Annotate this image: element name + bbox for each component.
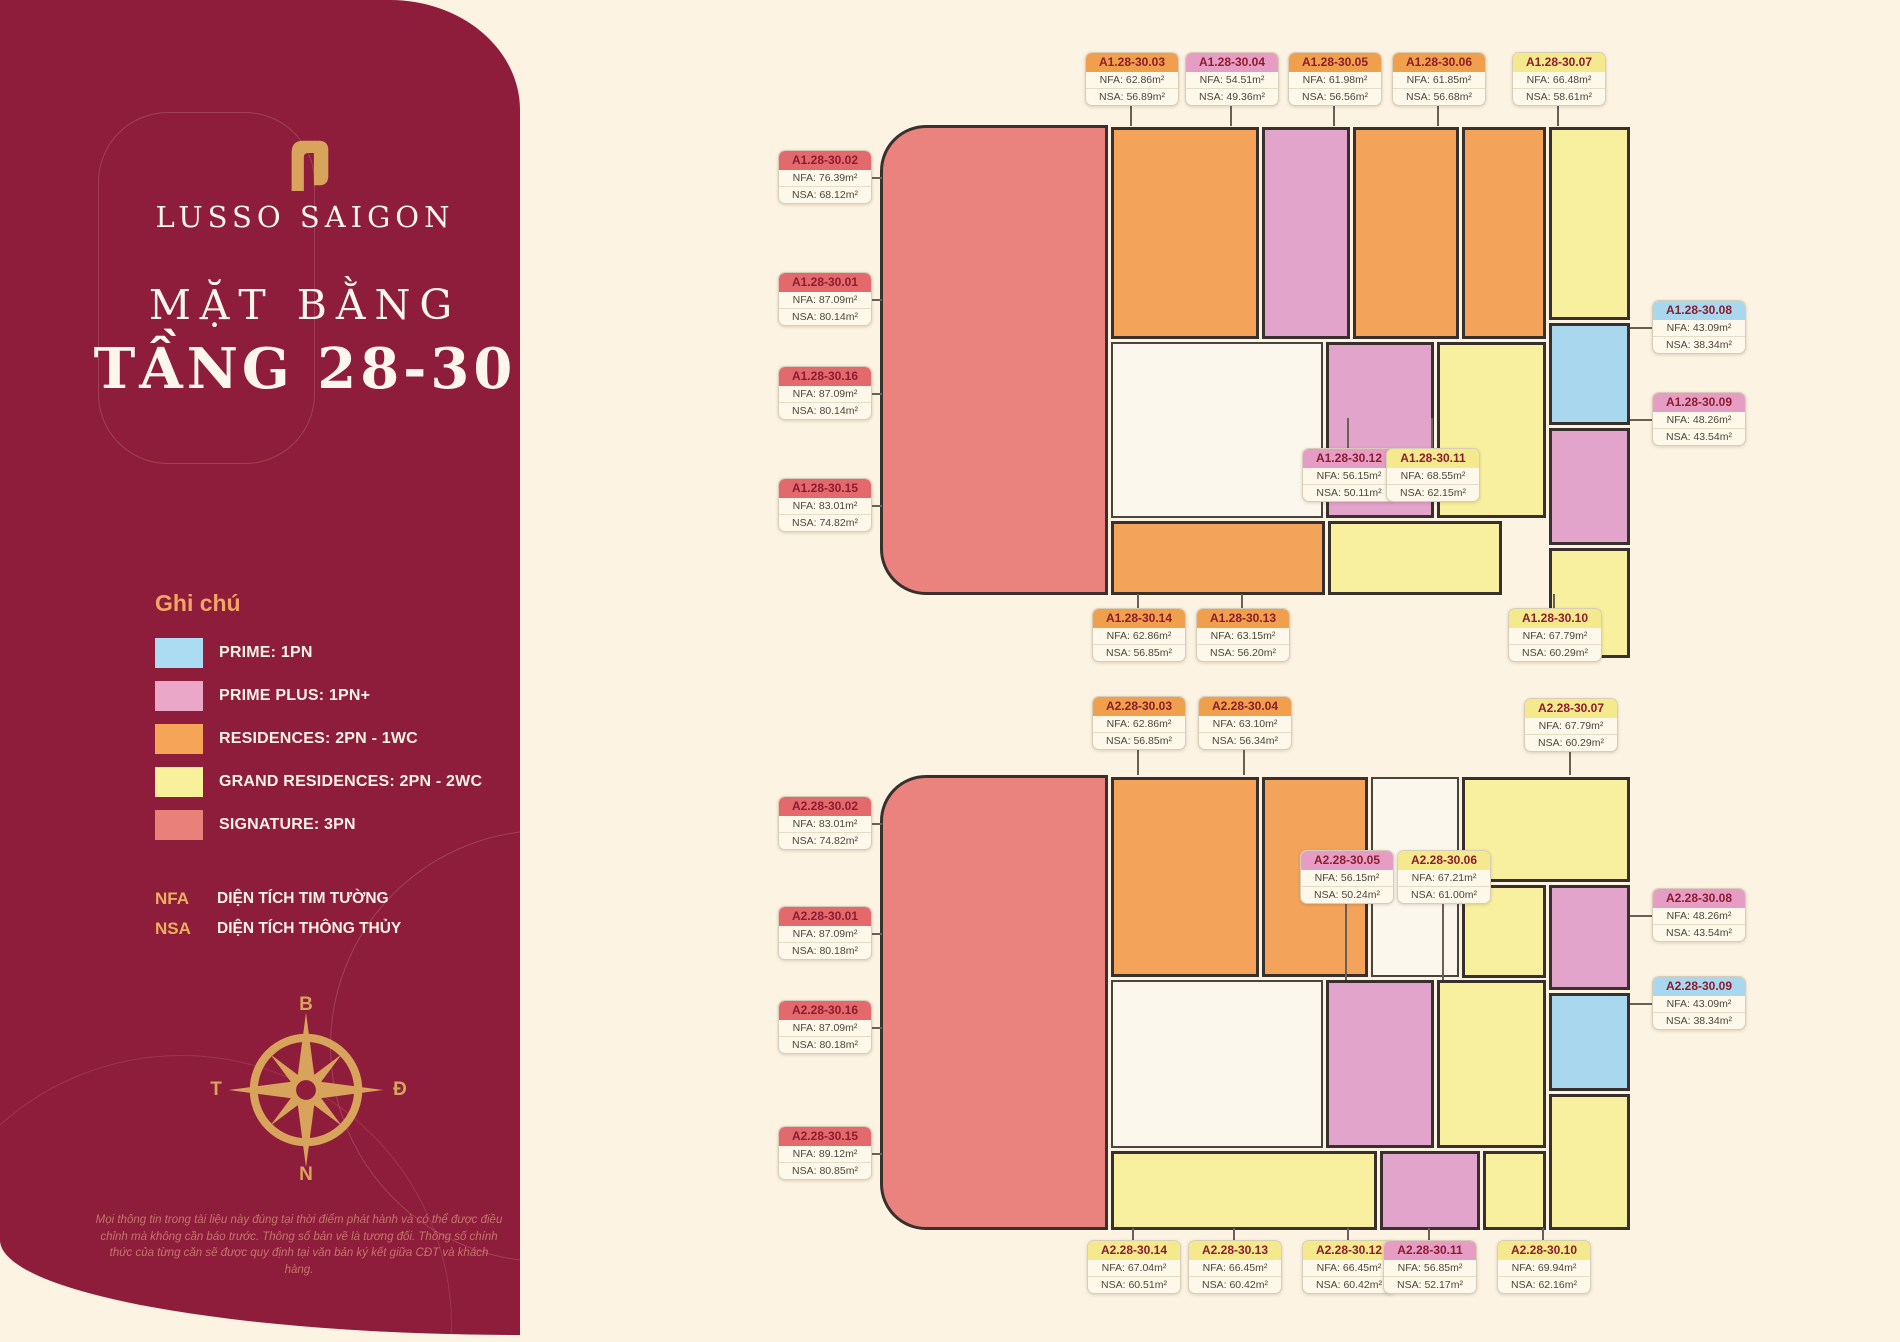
unit-area-residences [1111, 777, 1259, 977]
unit-nsa: NSA: 74.82m² [779, 515, 871, 531]
unit-label-card: A2.28-30.12NFA: 66.45m²NSA: 60.42m² [1302, 1240, 1396, 1294]
unit-id: A1.28-30.11 [1387, 449, 1479, 468]
unit-nfa: NFA: 63.10m² [1199, 716, 1291, 733]
abbreviation-row: NFADIỆN TÍCH TIM TƯỜNG [155, 884, 401, 914]
unit-id: A1.28-30.05 [1289, 53, 1381, 72]
callout-leader-line [1137, 748, 1139, 775]
legend-swatch [155, 767, 203, 797]
abbreviation-row: NSADIỆN TÍCH THÔNG THỦY [155, 914, 401, 944]
unit-id: A2.28-30.12 [1303, 1241, 1395, 1260]
legend-item: RESIDENCES: 2PN - 1WC [155, 724, 482, 754]
unit-area-residences [1462, 127, 1546, 339]
callout-leader-line [1630, 327, 1652, 329]
unit-id: A2.28-30.09 [1653, 977, 1745, 996]
legend-swatch [155, 681, 203, 711]
unit-label-card: A1.28-30.07NFA: 66.48m²NSA: 58.61m² [1512, 52, 1606, 106]
page-title-line2: TẦNG 28-30 [90, 336, 520, 402]
unit-nsa: NSA: 56.34m² [1199, 733, 1291, 749]
unit-id: A2.28-30.08 [1653, 889, 1745, 908]
unit-area-prime_plus [1326, 980, 1434, 1148]
unit-nsa: NSA: 74.82m² [779, 833, 871, 849]
unit-id: A1.28-30.08 [1653, 301, 1745, 320]
unit-nfa: NFA: 54.51m² [1186, 72, 1278, 89]
unit-label-card: A2.28-30.05NFA: 56.15m²NSA: 50.24m² [1300, 850, 1394, 904]
callout-leader-line [1130, 104, 1132, 126]
unit-nfa: NFA: 43.09m² [1653, 996, 1745, 1013]
disclaimer-text: Mọi thông tin trong tài liệu này đúng tạ… [95, 1212, 503, 1279]
brochure-page: LUSSO SAIGON MẶT BẰNG TẦNG 28-30 Ghi chú… [0, 0, 1900, 1342]
unit-nfa: NFA: 48.26m² [1653, 908, 1745, 925]
unit-nsa: NSA: 61.00m² [1398, 887, 1490, 903]
unit-nfa: NFA: 87.09m² [779, 926, 871, 943]
callout-leader-line [1241, 594, 1243, 608]
abbreviation-key: NSA [155, 919, 217, 939]
unit-nsa: NSA: 60.29m² [1509, 645, 1601, 661]
callout-leader-line [1347, 418, 1349, 448]
unit-area-residences [1111, 521, 1325, 595]
unit-nsa: NSA: 49.36m² [1186, 89, 1278, 105]
unit-label-card: A1.28-30.11NFA: 68.55m²NSA: 62.15m² [1386, 448, 1480, 502]
unit-label-card: A1.28-30.14NFA: 62.86m²NSA: 56.85m² [1092, 608, 1186, 662]
unit-nsa: NSA: 56.85m² [1093, 645, 1185, 661]
unit-nfa: NFA: 87.09m² [779, 386, 871, 403]
unit-id: A1.28-30.09 [1653, 393, 1745, 412]
unit-id: A2.28-30.02 [779, 797, 871, 816]
unit-id: A1.28-30.13 [1197, 609, 1289, 628]
unit-nfa: NFA: 66.45m² [1189, 1260, 1281, 1277]
unit-label-card: A1.28-30.09NFA: 48.26m²NSA: 43.54m² [1652, 392, 1746, 446]
unit-nfa: NFA: 69.94m² [1498, 1260, 1590, 1277]
callout-leader-line [1431, 418, 1433, 448]
legend: PRIME: 1PNPRIME PLUS: 1PN+RESIDENCES: 2P… [155, 638, 482, 853]
unit-label-card: A2.28-30.07NFA: 67.79m²NSA: 60.29m² [1524, 698, 1618, 752]
building-core [1111, 980, 1323, 1148]
unit-nsa: NSA: 68.12m² [779, 187, 871, 203]
unit-id: A1.28-30.16 [779, 367, 871, 386]
unit-label-card: A1.28-30.01NFA: 87.09m²NSA: 80.14m² [778, 272, 872, 326]
lusso-logo-icon [283, 132, 329, 194]
legend-item: SIGNATURE: 3PN [155, 810, 482, 840]
callout-leader-line [1553, 594, 1555, 608]
unit-nsa: NSA: 80.85m² [779, 1163, 871, 1179]
callout-leader-line [1345, 902, 1347, 980]
building-core [1111, 342, 1323, 518]
unit-label-card: A1.28-30.16NFA: 87.09m²NSA: 80.14m² [778, 366, 872, 420]
unit-nfa: NFA: 56.15m² [1303, 468, 1395, 485]
unit-area-residences [1353, 127, 1459, 339]
unit-area-residences [1111, 127, 1259, 339]
legend-label: RESIDENCES: 2PN - 1WC [219, 730, 418, 748]
unit-nsa: NSA: 38.34m² [1653, 337, 1745, 353]
unit-nfa: NFA: 66.48m² [1513, 72, 1605, 89]
legend-item: GRAND RESIDENCES: 2PN - 2WC [155, 767, 482, 797]
unit-nfa: NFA: 87.09m² [779, 292, 871, 309]
abbreviation-list: NFADIỆN TÍCH TIM TƯỜNGNSADIỆN TÍCH THÔNG… [155, 884, 401, 944]
unit-id: A1.28-30.04 [1186, 53, 1278, 72]
unit-area-grand [1437, 980, 1546, 1148]
unit-nsa: NSA: 60.29m² [1525, 735, 1617, 751]
callout-leader-line [1243, 748, 1245, 775]
unit-id: A2.28-30.10 [1498, 1241, 1590, 1260]
unit-nsa: NSA: 43.54m² [1653, 925, 1745, 941]
sidebar-panel: LUSSO SAIGON MẶT BẰNG TẦNG 28-30 Ghi chú… [0, 0, 520, 1335]
callout-leader-line [1132, 1228, 1134, 1240]
unit-label-card: A1.28-30.15NFA: 83.01m²NSA: 74.82m² [778, 478, 872, 532]
unit-nsa: NSA: 43.54m² [1653, 429, 1745, 445]
callout-leader-line [1630, 915, 1652, 917]
unit-id: A1.28-30.06 [1393, 53, 1485, 72]
unit-id: A2.28-30.15 [779, 1127, 871, 1146]
callout-leader-line [1233, 1228, 1235, 1240]
floor-plan-A2 [880, 775, 1630, 1230]
compass-south-label: N [296, 1164, 316, 1186]
callout-leader-line [1347, 1228, 1349, 1240]
legend-swatch [155, 638, 203, 668]
unit-nsa: NSA: 50.11m² [1303, 485, 1395, 501]
unit-id: A1.28-30.01 [779, 273, 871, 292]
unit-id: A2.28-30.14 [1088, 1241, 1180, 1260]
unit-id: A1.28-30.15 [779, 479, 871, 498]
legend-item: PRIME PLUS: 1PN+ [155, 681, 482, 711]
abbreviation-label: DIỆN TÍCH TIM TƯỜNG [217, 890, 389, 908]
abbreviation-label: DIỆN TÍCH THÔNG THỦY [217, 920, 401, 938]
unit-area-prime [1549, 323, 1630, 425]
unit-nfa: NFA: 56.85m² [1384, 1260, 1476, 1277]
unit-label-card: A2.28-30.14NFA: 67.04m²NSA: 60.51m² [1087, 1240, 1181, 1294]
unit-label-card: A1.28-30.04NFA: 54.51m²NSA: 49.36m² [1185, 52, 1279, 106]
unit-label-card: A2.28-30.01NFA: 87.09m²NSA: 80.18m² [778, 906, 872, 960]
unit-nfa: NFA: 43.09m² [1653, 320, 1745, 337]
unit-area-prime_plus [1380, 1151, 1480, 1230]
callout-leader-line [1137, 594, 1139, 608]
unit-nsa: NSA: 58.61m² [1513, 89, 1605, 105]
legend-swatch [155, 724, 203, 754]
unit-nfa: NFA: 83.01m² [779, 498, 871, 515]
callout-leader-line [1557, 104, 1559, 126]
unit-nfa: NFA: 68.55m² [1387, 468, 1479, 485]
unit-nsa: NSA: 56.68m² [1393, 89, 1485, 105]
unit-nsa: NSA: 56.89m² [1086, 89, 1178, 105]
page-title-line1: MẶT BẰNG [90, 281, 520, 329]
legend-label: SIGNATURE: 3PN [219, 816, 356, 834]
unit-id: A2.28-30.16 [779, 1001, 871, 1020]
unit-nfa: NFA: 76.39m² [779, 170, 871, 187]
unit-nsa: NSA: 60.51m² [1088, 1277, 1180, 1293]
unit-id: A1.28-30.02 [779, 151, 871, 170]
unit-nsa: NSA: 62.16m² [1498, 1277, 1590, 1293]
unit-nsa: NSA: 38.34m² [1653, 1013, 1745, 1029]
unit-id: A2.28-30.03 [1093, 697, 1185, 716]
legend-label: GRAND RESIDENCES: 2PN - 2WC [219, 773, 482, 791]
unit-label-card: A2.28-30.02NFA: 83.01m²NSA: 74.82m² [778, 796, 872, 850]
unit-area-grand [1111, 1151, 1377, 1230]
unit-nsa: NSA: 50.24m² [1301, 887, 1393, 903]
unit-nfa: NFA: 61.98m² [1289, 72, 1381, 89]
legend-label: PRIME: 1PN [219, 644, 313, 662]
legend-swatch [155, 810, 203, 840]
unit-label-card: A2.28-30.11NFA: 56.85m²NSA: 52.17m² [1383, 1240, 1477, 1294]
unit-area-grand [1328, 521, 1502, 595]
unit-label-card: A1.28-30.05NFA: 61.98m²NSA: 56.56m² [1288, 52, 1382, 106]
unit-area-grand [1549, 127, 1630, 320]
unit-nfa: NFA: 87.09m² [779, 1020, 871, 1037]
unit-id: A1.28-30.07 [1513, 53, 1605, 72]
unit-nfa: NFA: 83.01m² [779, 816, 871, 833]
unit-area-prime_plus [1549, 885, 1630, 990]
unit-label-card: A2.28-30.09NFA: 43.09m²NSA: 38.34m² [1652, 976, 1746, 1030]
unit-nfa: NFA: 48.26m² [1653, 412, 1745, 429]
compass-west-label: T [206, 1079, 226, 1101]
unit-id: A2.28-30.01 [779, 907, 871, 926]
unit-nsa: NSA: 56.56m² [1289, 89, 1381, 105]
unit-nsa: NSA: 80.14m² [779, 403, 871, 419]
compass-east-label: Đ [390, 1079, 410, 1101]
unit-nfa: NFA: 62.86m² [1093, 716, 1185, 733]
unit-area-prime_plus [1549, 428, 1630, 545]
unit-nsa: NSA: 56.85m² [1093, 733, 1185, 749]
unit-nsa: NSA: 80.14m² [779, 309, 871, 325]
unit-id: A2.28-30.05 [1301, 851, 1393, 870]
unit-nsa: NSA: 62.15m² [1387, 485, 1479, 501]
unit-label-card: A2.28-30.03NFA: 62.86m²NSA: 56.85m² [1092, 696, 1186, 750]
unit-id: A2.28-30.11 [1384, 1241, 1476, 1260]
unit-area-prime [1549, 993, 1630, 1091]
unit-nfa: NFA: 89.12m² [779, 1146, 871, 1163]
callout-leader-line [1630, 1003, 1652, 1005]
unit-label-card: A2.28-30.16NFA: 87.09m²NSA: 80.18m² [778, 1000, 872, 1054]
unit-id: A1.28-30.12 [1303, 449, 1395, 468]
unit-id: A1.28-30.10 [1509, 609, 1601, 628]
unit-area-signature [880, 775, 1108, 1230]
callout-leader-line [1542, 1228, 1544, 1240]
unit-id: A1.28-30.03 [1086, 53, 1178, 72]
unit-nfa: NFA: 67.21m² [1398, 870, 1490, 887]
callout-leader-line [1230, 104, 1232, 126]
unit-area-grand [1549, 1094, 1630, 1230]
unit-nsa: NSA: 80.18m² [779, 943, 871, 959]
legend-label: PRIME PLUS: 1PN+ [219, 687, 370, 705]
unit-label-card: A2.28-30.15NFA: 89.12m²NSA: 80.85m² [778, 1126, 872, 1180]
callout-leader-line [1630, 419, 1652, 421]
legend-item: PRIME: 1PN [155, 638, 482, 668]
unit-label-card: A2.28-30.10NFA: 69.94m²NSA: 62.16m² [1497, 1240, 1591, 1294]
unit-id: A2.28-30.13 [1189, 1241, 1281, 1260]
unit-area-signature [880, 125, 1108, 595]
unit-label-card: A1.28-30.12NFA: 56.15m²NSA: 50.11m² [1302, 448, 1396, 502]
floor-plan-A1 [880, 125, 1630, 595]
unit-label-card: A2.28-30.13NFA: 66.45m²NSA: 60.42m² [1188, 1240, 1282, 1294]
compass-rose-icon [216, 1000, 396, 1180]
callout-leader-line [1333, 104, 1335, 126]
unit-id: A2.28-30.07 [1525, 699, 1617, 718]
unit-nfa: NFA: 56.15m² [1301, 870, 1393, 887]
callout-leader-line [1428, 1228, 1430, 1240]
unit-id: A2.28-30.04 [1199, 697, 1291, 716]
unit-label-card: A2.28-30.04NFA: 63.10m²NSA: 56.34m² [1198, 696, 1292, 750]
callout-leader-line [1442, 902, 1444, 980]
callout-leader-line [1437, 104, 1439, 126]
unit-label-card: A1.28-30.03NFA: 62.86m²NSA: 56.89m² [1085, 52, 1179, 106]
unit-label-card: A1.28-30.02NFA: 76.39m²NSA: 68.12m² [778, 150, 872, 204]
unit-nsa: NSA: 80.18m² [779, 1037, 871, 1053]
unit-label-card: A1.28-30.06NFA: 61.85m²NSA: 56.68m² [1392, 52, 1486, 106]
unit-nfa: NFA: 67.79m² [1525, 718, 1617, 735]
legend-title: Ghi chú [155, 590, 241, 617]
unit-area-prime_plus [1262, 127, 1350, 339]
unit-nsa: NSA: 60.42m² [1189, 1277, 1281, 1293]
unit-nfa: NFA: 62.86m² [1093, 628, 1185, 645]
unit-nfa: NFA: 67.79m² [1509, 628, 1601, 645]
unit-id: A2.28-30.06 [1398, 851, 1490, 870]
unit-nfa: NFA: 63.15m² [1197, 628, 1289, 645]
unit-label-card: A1.28-30.08NFA: 43.09m²NSA: 38.34m² [1652, 300, 1746, 354]
callout-leader-line [1569, 750, 1571, 775]
unit-nfa: NFA: 61.85m² [1393, 72, 1485, 89]
unit-nfa: NFA: 67.04m² [1088, 1260, 1180, 1277]
brand-name: LUSSO SAIGON [90, 200, 520, 234]
unit-nsa: NSA: 52.17m² [1384, 1277, 1476, 1293]
unit-nfa: NFA: 62.86m² [1086, 72, 1178, 89]
unit-id: A1.28-30.14 [1093, 609, 1185, 628]
abbreviation-key: NFA [155, 889, 217, 909]
unit-nfa: NFA: 66.45m² [1303, 1260, 1395, 1277]
compass-north-label: B [296, 994, 316, 1016]
unit-label-card: A1.28-30.10NFA: 67.79m²NSA: 60.29m² [1508, 608, 1602, 662]
unit-label-card: A2.28-30.06NFA: 67.21m²NSA: 61.00m² [1397, 850, 1491, 904]
unit-nsa: NSA: 60.42m² [1303, 1277, 1395, 1293]
unit-label-card: A1.28-30.13NFA: 63.15m²NSA: 56.20m² [1196, 608, 1290, 662]
unit-nsa: NSA: 56.20m² [1197, 645, 1289, 661]
unit-label-card: A2.28-30.08NFA: 48.26m²NSA: 43.54m² [1652, 888, 1746, 942]
unit-area-grand [1483, 1151, 1546, 1230]
